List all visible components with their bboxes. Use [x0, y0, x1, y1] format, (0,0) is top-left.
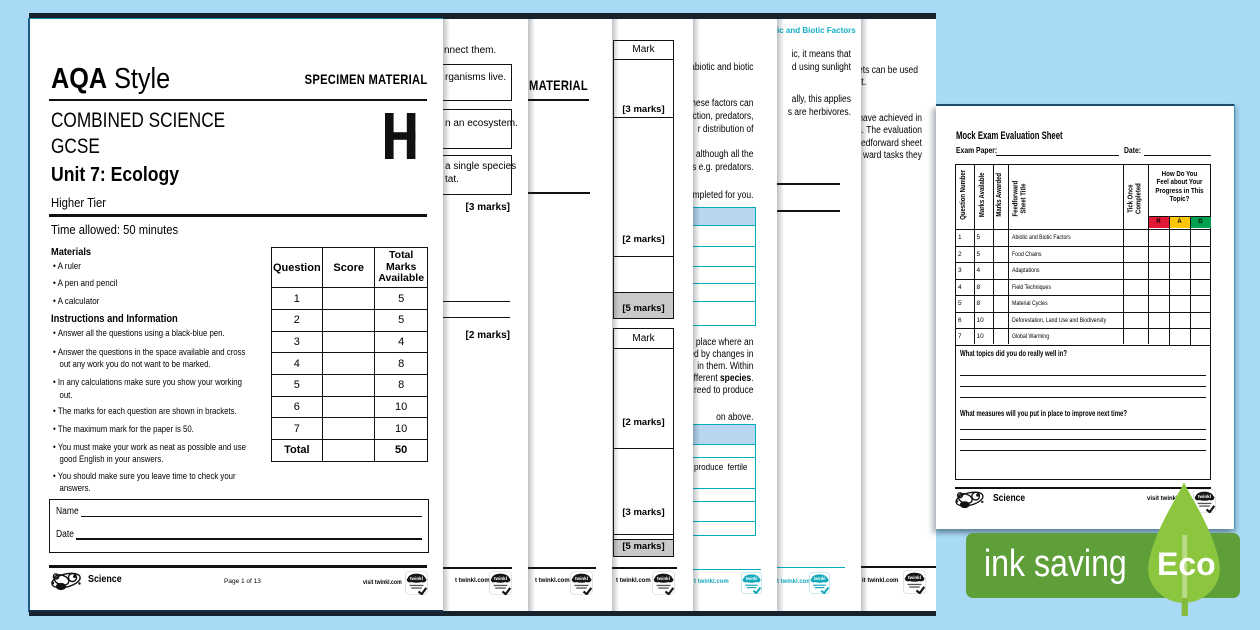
svg-text:twinkl: twinkl — [746, 576, 758, 581]
svg-text:twinkl: twinkl — [814, 576, 826, 581]
svg-text:twinkl: twinkl — [657, 576, 670, 581]
svg-text:twinkl: twinkl — [410, 576, 423, 581]
svg-text:twinkl: twinkl — [494, 576, 507, 581]
svg-text:twinkl: twinkl — [575, 576, 588, 581]
svg-text:twinkl: twinkl — [908, 575, 921, 580]
